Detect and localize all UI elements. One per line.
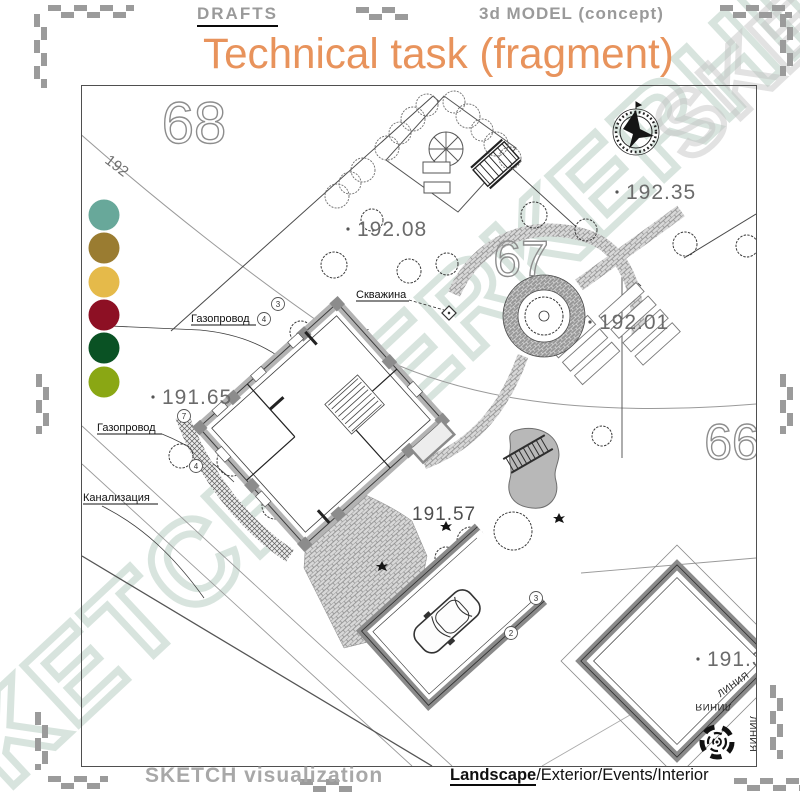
- elevation-19208: 192.08: [357, 218, 427, 241]
- line-label: ЛИНИЯ: [695, 701, 731, 712]
- sewer-label: Канализация: [83, 492, 150, 504]
- swatch-teal: [89, 200, 120, 231]
- meander-left-top: [34, 14, 47, 88]
- meander-right-top: [780, 14, 793, 76]
- callout: 7: [182, 412, 187, 421]
- meander-left-bottom: [35, 712, 48, 770]
- callout: 4: [262, 315, 267, 324]
- swatch-lime: [89, 367, 120, 398]
- plaza-tree: [525, 297, 563, 335]
- category-landscape: Landscape: [450, 766, 536, 786]
- lot-number-67: 67: [493, 231, 549, 287]
- meander-left-mid: [36, 374, 49, 434]
- swatch-olive: [89, 233, 120, 264]
- elevation-19157: 191.57: [412, 504, 476, 525]
- elevation-1913: 191.3: [707, 648, 756, 671]
- callout: 3: [276, 300, 281, 309]
- color-palette: [89, 200, 120, 398]
- spiral-symbol: [702, 727, 732, 757]
- category-rest: /Exterior/Events/Interior: [536, 766, 708, 784]
- well-label: Скважина: [356, 289, 407, 301]
- lounger: [423, 162, 450, 173]
- site-plan-frame: 3 4 7 4 3 2 68 67 66 192 192.35 192.08 1…: [81, 85, 757, 767]
- lounger: [424, 182, 450, 193]
- meander-right-bottom: [770, 685, 783, 759]
- drafts-label: DRAFTS: [197, 4, 278, 27]
- elevation-19165: 191.65: [162, 386, 232, 409]
- meander-bottom-left: [48, 776, 108, 789]
- well-marker: [409, 300, 456, 320]
- gas-label: Газопровод: [191, 313, 250, 325]
- elevation-19235: 192.35: [626, 181, 696, 204]
- sketch-visualization-label: SKETCH visualization: [145, 764, 383, 788]
- callout: 4: [194, 462, 199, 471]
- swatch-green: [89, 333, 120, 364]
- meander-bottom-right: [734, 778, 800, 791]
- model-label: 3d MODEL (concept): [479, 4, 664, 24]
- plaza: [503, 275, 585, 357]
- meander-right-mid: [780, 374, 793, 434]
- site-plan: 3 4 7 4 3 2 68 67 66 192 192.35 192.08 1…: [82, 86, 756, 766]
- elevation-19201: 192.01: [599, 311, 669, 334]
- poster-page: { "header": { "drafts": "DRAFTS", "model…: [0, 0, 800, 800]
- lot-number-68: 68: [162, 91, 227, 156]
- gas2-label: Газопровод: [97, 422, 156, 434]
- compass-rose-icon: [613, 102, 659, 155]
- pond: [503, 428, 559, 508]
- categories-label: Landscape/Exterior/Events/Interior: [450, 766, 709, 785]
- lot-number-66: 66: [704, 414, 756, 470]
- swatch-yellow: [89, 267, 120, 298]
- callout: 3: [534, 594, 539, 603]
- page-title: Technical task (fragment): [203, 30, 674, 79]
- meander-top-left: [48, 5, 134, 18]
- callout: 2: [509, 629, 514, 638]
- swatch-red: [89, 300, 120, 331]
- parasol-icon: [429, 132, 463, 166]
- meander-top-mid: [356, 7, 408, 20]
- line-label: ЛИНИЯ: [747, 716, 756, 752]
